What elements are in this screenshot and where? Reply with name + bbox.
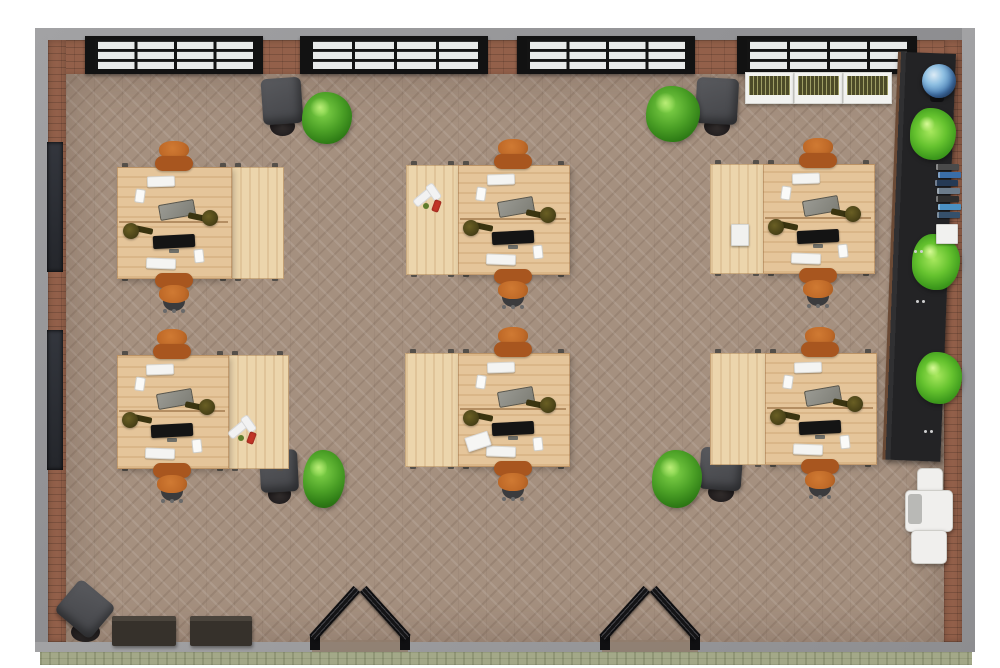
desk-cluster-extension — [710, 164, 765, 274]
office-chair-seat — [159, 285, 189, 303]
desk-cluster-extension — [230, 167, 284, 279]
door-threshold — [602, 640, 698, 652]
chair-caster — [818, 495, 822, 499]
monitor-stand — [813, 244, 823, 248]
window — [737, 36, 917, 74]
planter-box — [794, 72, 843, 104]
office-chair-back — [494, 154, 532, 169]
chair-caster — [827, 495, 831, 499]
phone — [532, 436, 543, 451]
planter-grass — [749, 76, 790, 95]
console-handle — [920, 250, 923, 253]
water-cooler-panel — [908, 494, 922, 524]
monitor — [152, 234, 195, 249]
office-chair-seat — [805, 471, 835, 489]
keyboard — [146, 364, 174, 376]
console-handle — [914, 250, 917, 253]
outdoor-walkway — [40, 652, 972, 665]
door-threshold — [312, 640, 408, 652]
bottle-cap — [423, 203, 429, 209]
chair-caster — [172, 309, 176, 313]
lounge-chair — [260, 77, 303, 126]
phone — [193, 249, 204, 264]
monitor-stand — [508, 245, 518, 249]
desk-cluster-extension — [710, 353, 767, 465]
desk-lamp — [845, 206, 861, 222]
chair-caster — [163, 309, 167, 313]
keyboard — [147, 176, 175, 188]
left-wall-window — [47, 330, 63, 470]
book — [936, 164, 959, 170]
console-handle — [924, 430, 927, 433]
monitor — [799, 420, 842, 435]
console-handle — [916, 300, 919, 303]
storage-box — [936, 224, 958, 244]
chair-caster — [511, 497, 515, 501]
office-chair-back — [153, 344, 191, 359]
phone — [134, 376, 146, 391]
office-chair-seat — [157, 475, 187, 493]
monitor — [492, 421, 535, 436]
phone — [191, 438, 202, 453]
book — [938, 172, 961, 178]
lounge-chair — [695, 77, 739, 125]
monitor-stand — [169, 249, 179, 253]
planter-box — [843, 72, 892, 104]
desk-cluster-extension — [227, 355, 289, 469]
desk-cluster-extension — [405, 353, 460, 467]
palm-plant — [916, 352, 962, 404]
desk-lamp — [463, 220, 479, 236]
chair-caster — [520, 497, 524, 501]
phone — [839, 435, 850, 450]
phone — [780, 185, 792, 200]
chair-caster — [511, 305, 515, 309]
book — [937, 188, 960, 194]
phone — [837, 244, 848, 259]
chair-caster — [825, 304, 829, 308]
monitor-stand — [815, 435, 825, 439]
chair-caster — [161, 499, 165, 503]
globe — [922, 64, 956, 98]
left-wall-window — [47, 142, 63, 272]
console-handle — [930, 430, 933, 433]
window — [517, 36, 695, 74]
office-chair-back — [494, 342, 532, 357]
chair-caster — [816, 304, 820, 308]
office-chair-seat — [498, 281, 528, 299]
office-chair-seat — [803, 280, 833, 298]
phone — [475, 374, 487, 389]
monitor-stand — [167, 438, 177, 442]
desk-lamp — [770, 409, 786, 425]
planter-box — [745, 72, 794, 104]
chair-caster — [502, 305, 506, 309]
console-handle — [922, 300, 925, 303]
window — [85, 36, 263, 74]
keyboard — [146, 257, 176, 269]
keyboard — [487, 362, 515, 374]
phone — [782, 374, 794, 389]
wall-bottom-edge — [35, 642, 975, 652]
book — [935, 180, 958, 186]
desk-lamp — [540, 207, 556, 223]
chair-caster — [520, 305, 524, 309]
window-glass — [527, 39, 685, 69]
window — [300, 36, 488, 74]
desk-lamp — [123, 223, 139, 239]
desk-lamp — [540, 397, 556, 413]
wall-right-edge — [962, 28, 975, 652]
chair-caster — [502, 497, 506, 501]
planter-grass — [847, 76, 888, 95]
book — [938, 204, 961, 210]
keyboard — [486, 445, 516, 457]
chair-caster — [809, 495, 813, 499]
phone — [532, 245, 543, 260]
keyboard — [793, 443, 823, 455]
phone — [134, 188, 146, 203]
floor-plan-scene — [0, 0, 1000, 668]
monitor — [151, 423, 194, 438]
keyboard — [791, 252, 821, 264]
planter-grass — [798, 76, 839, 95]
chair-caster — [170, 499, 174, 503]
palm-plant — [910, 108, 956, 160]
office-chair-back — [799, 153, 837, 168]
desk-lamp — [199, 399, 215, 415]
office-chair-back — [801, 342, 839, 357]
window-glass — [95, 39, 253, 69]
paper-box — [731, 224, 749, 246]
window-glass — [747, 39, 907, 69]
phone — [475, 186, 487, 201]
desk-lamp — [847, 396, 863, 412]
desk-cluster-extension — [406, 165, 460, 275]
office-chair-back — [155, 156, 193, 171]
bench — [112, 616, 176, 646]
desk-lamp — [202, 210, 218, 226]
keyboard — [486, 253, 516, 265]
water-cooler-tray — [911, 530, 947, 564]
keyboard — [487, 174, 515, 186]
bench — [190, 616, 252, 646]
chair-caster — [181, 309, 185, 313]
keyboard — [145, 447, 175, 459]
window-glass — [310, 39, 478, 69]
keyboard — [792, 173, 820, 185]
office-chair-seat — [498, 473, 528, 491]
chair-caster — [807, 304, 811, 308]
monitor-stand — [508, 436, 518, 440]
bottle-cap — [238, 435, 244, 441]
book — [936, 196, 959, 202]
desk-lamp — [768, 219, 784, 235]
chair-caster — [179, 499, 183, 503]
keyboard — [794, 362, 822, 374]
book — [937, 212, 960, 218]
